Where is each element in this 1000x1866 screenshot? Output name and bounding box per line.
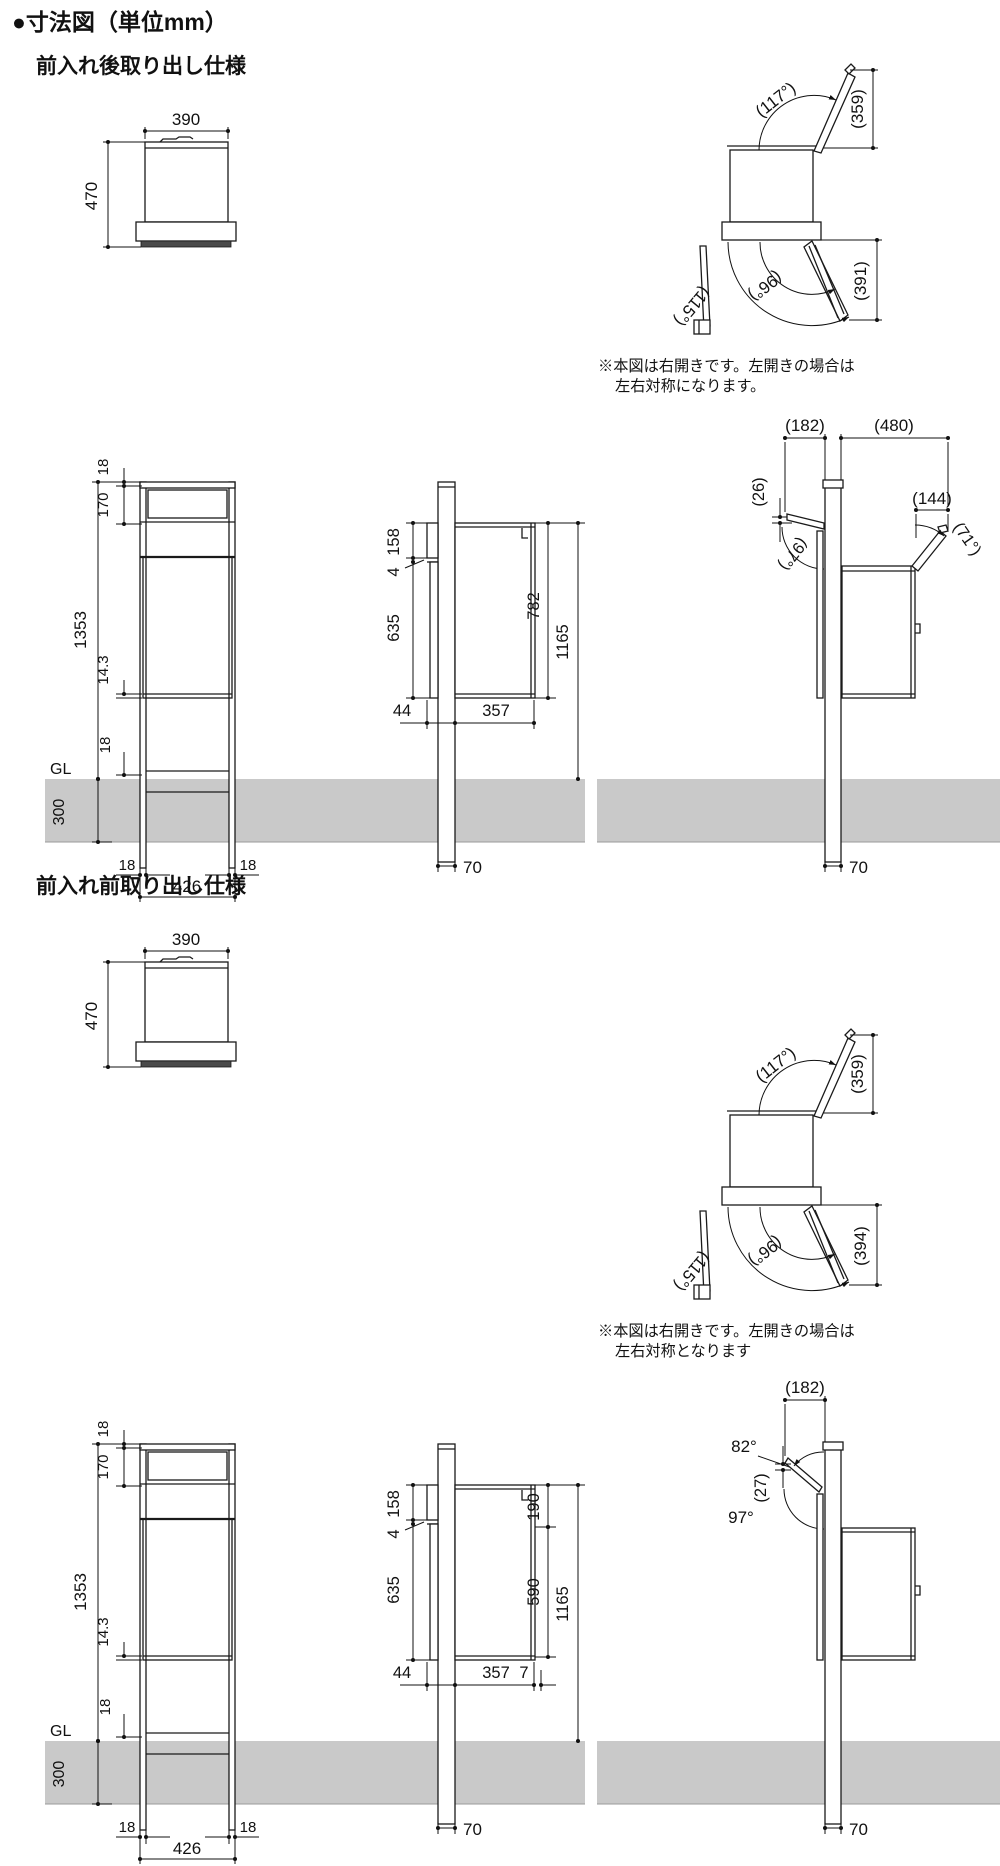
s1-front-width-label: 390: [172, 110, 200, 129]
s1-side-357-label: 357: [482, 702, 510, 720]
s2-elev-300-label: 300: [51, 1761, 68, 1788]
s1-side-44-label: 44: [393, 702, 411, 720]
s2-side-635-label: 635: [385, 1576, 403, 1604]
s1-elev-143-label: 14.3: [95, 655, 112, 684]
s2-side-1165-label: 1165: [554, 1586, 572, 1621]
s2-side-4-label: 4: [385, 1529, 403, 1538]
s2-note-line1: ※本図は右開きです。左開きの場合は: [598, 1323, 855, 1340]
s2-side-44-label: 44: [393, 1664, 411, 1682]
s2-open2-27-label: (27): [752, 1473, 770, 1502]
section1-title: 前入れ後取り出し仕様: [36, 54, 247, 78]
s1-open2-pole-label: 70: [849, 858, 868, 877]
section2-title: 前入れ前取り出し仕様: [36, 874, 247, 898]
s1-open2-144-label: (144): [912, 489, 952, 508]
s1-elev-18top-label: 18: [95, 459, 112, 476]
s1-side-782-label: 782: [525, 592, 543, 620]
s2-elev-143-label: 14.3: [95, 1617, 112, 1646]
s1-elev-1353-label: 1353: [71, 611, 90, 649]
s2-side-pole-label: 70: [463, 1820, 482, 1839]
s1-ground: [45, 779, 1000, 842]
s2-ground: [45, 1741, 1000, 1804]
s2-elev-18gl-label: 18: [97, 1699, 114, 1716]
s1-lid-height-label: (359): [848, 89, 867, 129]
s1-open2-26-label: (26): [750, 477, 768, 506]
s2-elev-b18r-label: 18: [240, 1819, 257, 1836]
s2-open-view: (117°) (359) (96°) (115°) (394) ※本図は右開きで…: [598, 1029, 882, 1360]
s1-elev-b18l-label: 18: [119, 857, 136, 874]
s1-note-line1: ※本図は右開きです。左開きの場合は: [598, 358, 855, 375]
s2-gl-label: GL: [50, 1723, 71, 1740]
s2-side-357-label: 357: [482, 1664, 510, 1682]
s1-side-635-label: 635: [385, 614, 403, 642]
s1-side-1165-label: 1165: [554, 624, 572, 659]
s1-front-height-label: 470: [82, 182, 101, 210]
s2-door-height-label: (394): [851, 1226, 870, 1266]
s2-front-width-label: 390: [172, 930, 200, 949]
s2-front-height-label: 470: [82, 1002, 101, 1030]
dimension-drawing: ●寸法図（単位mm） 前入れ後取り出し仕様 390 470 (117°) (35…: [0, 0, 1000, 1866]
s2-side-7-label: 7: [519, 1664, 528, 1682]
s2-lid-height-label: (359): [848, 1054, 867, 1094]
s2-open2-pole-label: 70: [849, 1820, 868, 1839]
s1-open2-71-label: (71°): [949, 519, 984, 559]
s1-open-view: (117°) (359) (96°) (115°) (391) ※本図は右開きで…: [598, 64, 882, 395]
s1-door-height-label: (391): [851, 261, 870, 301]
s2-elev-426-label: 426: [173, 1839, 201, 1858]
s1-elev-300-label: 300: [51, 799, 68, 826]
s2-elev-b18l-label: 18: [119, 1819, 136, 1836]
s1-gl-label: GL: [50, 761, 71, 778]
s2-front-view: 390 470: [82, 930, 236, 1067]
s1-note-line2: 左右対称になります。: [615, 378, 765, 395]
s2-elev-1353-label: 1353: [71, 1573, 90, 1611]
drawing-page: ●寸法図（単位mm） 前入れ後取り出し仕様 390 470 (117°) (35…: [0, 0, 1000, 1866]
s1-elev-18gl-label: 18: [97, 737, 114, 754]
s1-elev-b18r-label: 18: [240, 857, 257, 874]
s1-front-view: 390 470: [82, 110, 236, 247]
s1-open2-182-label: (182): [785, 416, 825, 435]
s2-note-line2: 左右対称となります: [615, 1343, 751, 1360]
s2-open2-82-label: 82°: [731, 1437, 757, 1456]
s1-open2-480-label: (480): [874, 416, 914, 435]
s2-open2-182-label: (182): [785, 1378, 825, 1397]
s1-side-4-label: 4: [385, 567, 403, 576]
s2-side-158-label: 158: [385, 1490, 403, 1518]
s2-elev-18top-label: 18: [95, 1421, 112, 1438]
s1-side-pole-label: 70: [463, 858, 482, 877]
page-title: ●寸法図（単位mm）: [12, 9, 228, 35]
s2-open2-97-label: 97°: [728, 1508, 754, 1527]
s1-side-158-label: 158: [385, 528, 403, 556]
s2-side-190-label: 190: [525, 1493, 543, 1521]
s2-side-590-label: 590: [525, 1578, 543, 1606]
